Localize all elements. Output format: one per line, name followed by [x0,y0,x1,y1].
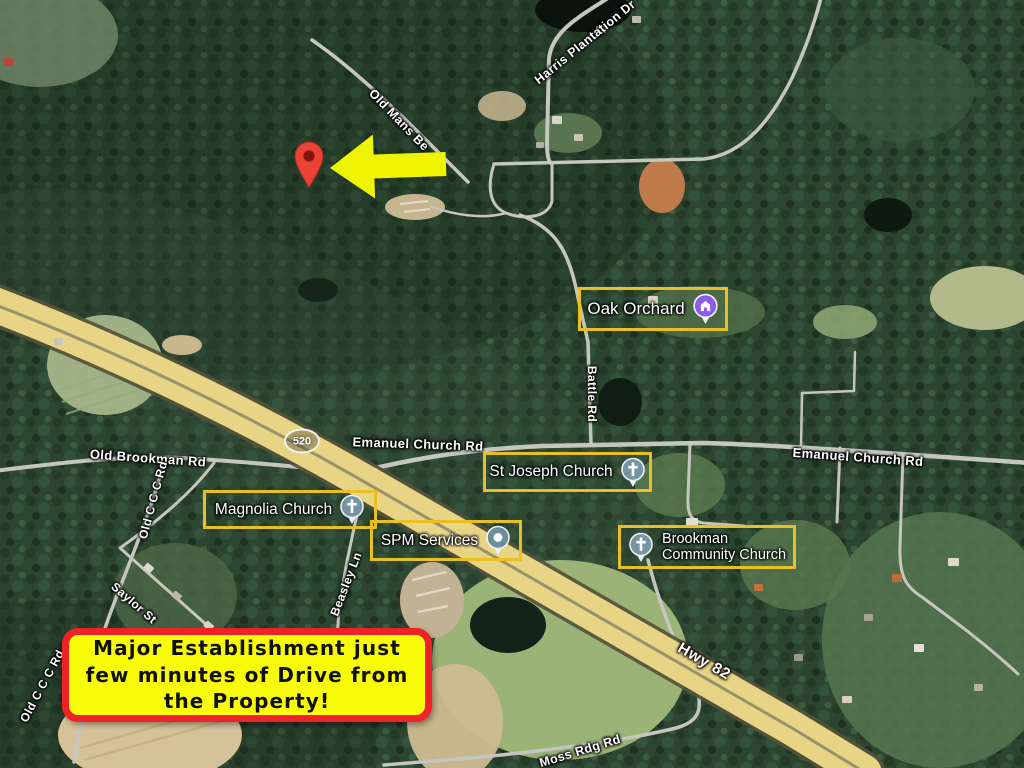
route-shield-number: 520 [293,435,311,447]
annotated-satellite-map: Harris Plantation Dr Old Mans Be Old Bro… [0,0,1024,768]
place-icon-purple [692,293,719,325]
poi-magnolia-church-label: Magnolia Church [215,501,332,519]
church-icon [628,532,654,563]
poi-spm-services-label: SPM Services [381,532,478,550]
poi-magnolia-church[interactable]: Magnolia Church [203,490,377,529]
callout-line2: few minutes of Drive from [86,662,409,688]
property-pin-icon[interactable] [292,141,326,189]
callout-box: Major Establishment just few minutes of … [62,628,432,722]
poi-brookman-community-church[interactable]: Brookman Community Church [618,525,796,569]
callout-line3: the Property! [164,688,330,714]
poi-brookman-line2: Community Church [662,547,786,563]
poi-brookman-line1: Brookman [662,531,786,547]
route-shield-520: 520 [284,429,320,454]
church-icon [620,457,646,488]
arrow-left-icon [327,130,449,202]
church-icon [339,494,365,525]
road-label-battle-rd: Battle Rd [585,366,599,422]
poi-st-joseph-church[interactable]: St Joseph Church [483,452,652,492]
place-icon-generic [485,525,511,556]
poi-oak-orchard-label: Oak Orchard [587,299,684,319]
poi-oak-orchard[interactable]: Oak Orchard [578,287,728,331]
callout-line1: Major Establishment just [93,635,401,661]
poi-st-joseph-church-label: St Joseph Church [489,463,612,481]
poi-spm-services[interactable]: SPM Services [370,520,522,561]
